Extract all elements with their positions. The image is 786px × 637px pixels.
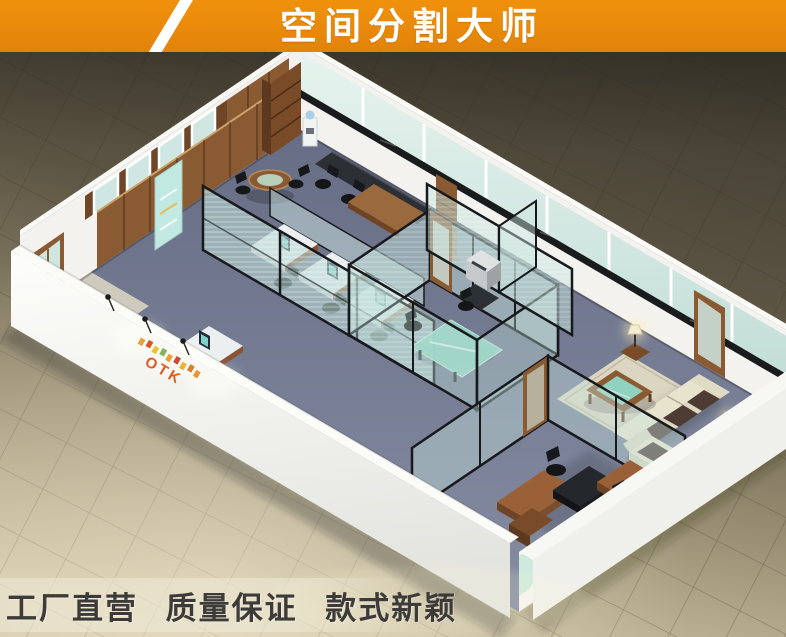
banner-title: 空间分割大师 (0, 0, 786, 52)
title-banner: 空间分割大师 (0, 0, 786, 52)
slogan-styles: 款式新颖 (325, 591, 457, 626)
product-image: OTK 空间分割大师 工厂直营 质量保证 款式新颖 (0, 0, 786, 637)
slogan-text: 工厂直营 质量保证 款式新颖 (6, 583, 474, 628)
slogan-factory-direct: 工厂直营 (6, 591, 138, 626)
office-render: OTK (0, 0, 786, 637)
slogan-quality: 质量保证 (166, 591, 298, 626)
